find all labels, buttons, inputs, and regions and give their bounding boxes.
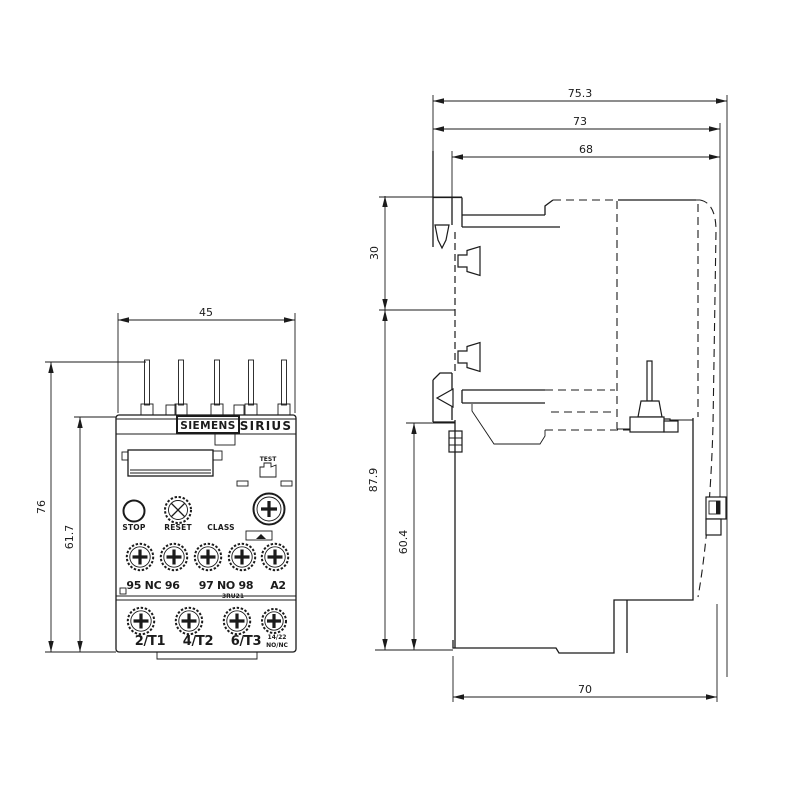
test-slide[interactable]: TEST [260,456,278,477]
terminal-label-a2: A2 [270,579,286,592]
pin-stub-right [234,405,244,415]
vent-slot-left [237,481,248,486]
terminal-label-nonc: NO/NC [266,642,288,649]
brand-band: SIEMENS SIRIUS [177,416,292,445]
front-view: 45 76 61.7 [35,306,296,659]
dim-label-45: 45 [199,306,213,319]
terminal-screw[interactable] [128,608,154,634]
lower-plug [458,343,480,372]
technical-drawing-canvas: 45 76 61.7 [0,0,800,800]
dimension-height-60-4: 60.4 [397,423,455,650]
terminal-screw[interactable] [262,609,286,633]
rear-clip [706,497,726,535]
main-terminal-row: 2/T1 4/T2 6/T3 14/22 NO/NC [128,608,289,649]
terminal-screw[interactable] [161,544,187,570]
dim-label-87-9: 87.9 [367,468,380,493]
sirius-label: SIRIUS [240,419,292,433]
dim-label-73: 73 [573,115,587,128]
test-label: TEST [260,456,278,463]
connection-pins [141,360,290,415]
reset-button[interactable]: RESET [164,497,192,532]
terminal-screw[interactable] [127,544,153,570]
upper-plug [458,247,480,276]
dimension-height-76: 76 [35,362,146,652]
dim-label-30: 30 [368,246,381,260]
pin-3 [211,360,223,415]
lower-latch-pawl [437,389,453,407]
terminal-screw[interactable] [195,544,221,570]
terminal-label-1422: 14/22 [268,634,287,641]
dimension-offset-30: 30 [368,196,462,310]
dim-label-76: 76 [35,500,48,514]
dimension-depth-75-3: 75.3 [433,87,727,677]
dim-label-70: 70 [578,683,592,696]
model-label: 3RU21 [222,593,244,600]
marker-square [120,588,126,594]
setting-dial-window[interactable] [122,450,222,476]
upper-latch-pin [435,225,449,248]
band-tab [215,434,235,445]
class-label: CLASS [207,523,235,532]
terminal-label-2t1: 2/T1 [135,634,166,649]
dim-label-68: 68 [579,143,593,156]
dimension-height-87-9: 87.9 [367,310,453,650]
pin-5 [278,360,290,415]
terminal-label-6t3: 6/T3 [231,634,262,649]
terminal-label-4t2: 4/T2 [183,634,214,649]
reset-label: RESET [164,523,192,532]
class-adjuster[interactable]: CLASS [207,494,284,541]
terminal-screw[interactable] [224,608,250,634]
vent-slot-right [281,481,292,486]
terminal-screw[interactable] [262,544,288,570]
dimension-depth-73: 73 [433,115,720,497]
dimension-height-61-7: 61.7 [63,417,116,652]
contactor-phantom-outline [455,200,716,597]
aux-terminal-row: 95 NC 96 97 NO 98 A2 3RU21 [120,544,288,600]
pin-4 [245,360,257,415]
relay-dimension-drawing: 45 76 61.7 [0,0,800,800]
dim-label-75-3: 75.3 [568,87,593,100]
terminal-label-95-nc-96: 95 NC 96 [126,579,180,592]
dimension-depth-68: 68 [452,143,720,199]
pin-stub-left [166,405,176,415]
plugin-pin [647,361,652,401]
dim-label-61-7: 61.7 [63,525,76,550]
stop-button[interactable]: STOP [122,501,145,533]
terminal-screw[interactable] [229,544,255,570]
pin-1 [141,360,153,415]
stop-label: STOP [122,523,145,532]
dim-label-60-4: 60.4 [397,530,410,555]
siemens-logo: SIEMENS [180,420,235,432]
relay-side-profile [433,151,726,653]
pin-2 [175,360,187,415]
terminal-screw[interactable] [176,608,202,634]
side-view: 75.3 73 68 30 87.9 [367,87,727,702]
terminal-label-97-no-98: 97 NO 98 [199,579,253,592]
